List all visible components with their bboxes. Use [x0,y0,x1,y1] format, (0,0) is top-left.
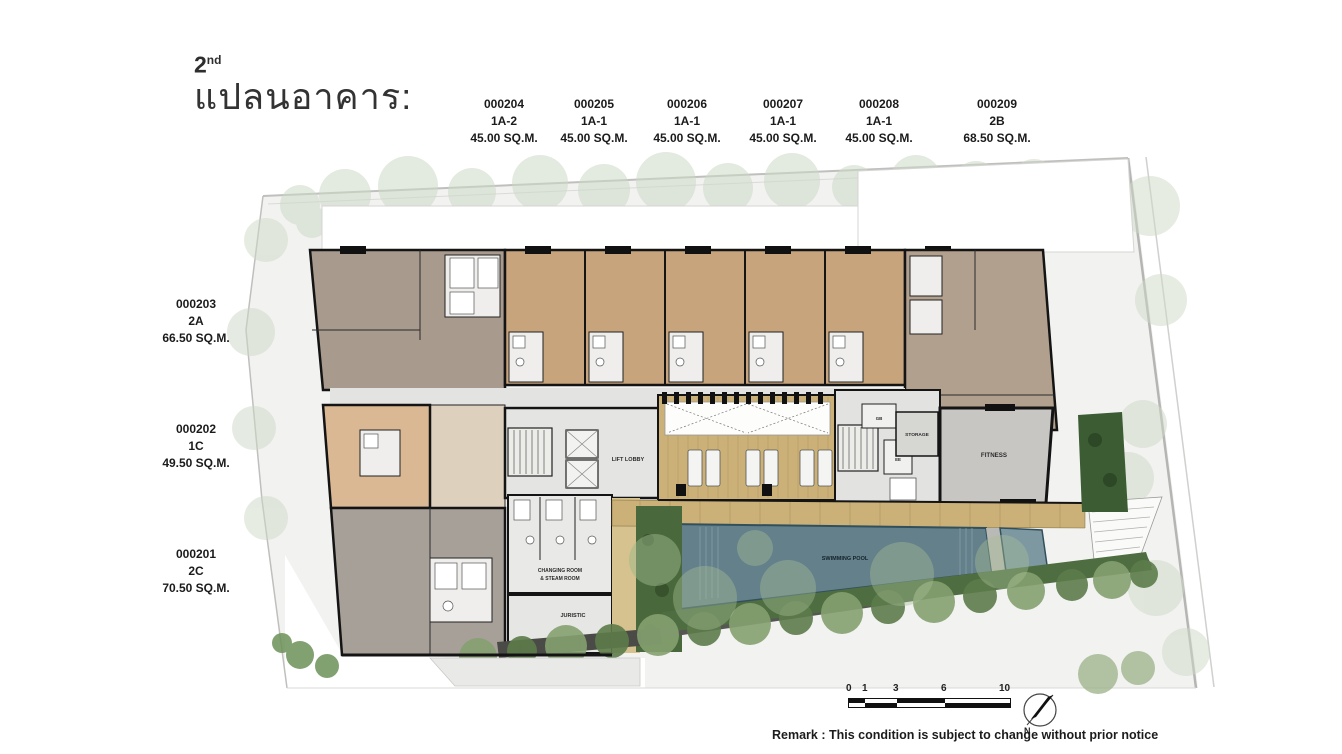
unit-area: 45.00 SQ.M. [642,130,732,147]
unit-type: 2C [136,563,256,580]
amenity-deck [658,392,835,500]
compass-needle [1031,695,1053,719]
fitness-label: FITNESS [981,452,1007,459]
unit-area: 45.00 SQ.M. [738,130,828,147]
thai-title: แปลนอาคาร: [194,77,412,117]
service-cells [430,405,505,508]
unit-type: 1A-1 [549,113,639,130]
unit-type: 1A-1 [642,113,732,130]
scale-tick: 3 [893,683,899,694]
unit-type: 2A [136,313,256,330]
remark-text: Remark : This condition is subject to ch… [772,728,1158,742]
units-1a-strip [505,246,951,385]
unit-label-000203: 000203 2A 66.50 SQ.M. [136,296,256,347]
juristic-label: JURISTIC [560,613,585,619]
unit-label-000204: 000204 1A-2 45.00 SQ.M. [459,96,549,147]
unit-area: 66.50 SQ.M. [136,330,256,347]
floor-number: 2nd [194,48,412,77]
scale-tick: 0 [846,683,852,694]
unit-number: 000209 [952,96,1042,113]
vertical-garden-right [1078,412,1128,512]
unit-area: 68.50 SQ.M. [952,130,1042,147]
unit-type: 2B [952,113,1042,130]
unit-area: 45.00 SQ.M. [834,130,924,147]
unit-number: 000204 [459,96,549,113]
lift-lobby-label: LIFT LOBBY [612,457,645,463]
ee-label: EE [895,457,901,462]
stair-core-1 [508,428,552,476]
trellis-canopy [665,402,830,435]
unit-number: 000206 [642,96,732,113]
unit-number: 000202 [136,421,256,438]
unit-type: 1A-1 [738,113,828,130]
changing-room-label-2: & STEAM ROOM [540,576,579,582]
unit-number: 000207 [738,96,828,113]
sun-loungers [688,450,832,486]
swimming-pool-label: SWIMMING POOL [822,556,869,562]
unit-label-000207: 000207 1A-1 45.00 SQ.M. [738,96,828,147]
unit-1c-area [323,405,430,508]
unit-label-000202: 000202 1C 49.50 SQ.M. [136,421,256,472]
changing-room-label-1: CHANGING ROOM [538,568,582,574]
page-title: 2nd แปลนอาคาร: [194,48,412,117]
unit-2a-area [310,246,505,390]
storage-label: STORAGE [905,432,929,438]
scale-bar: 0 1 3 6 10 [848,698,1011,708]
scale-tick: 1 [862,683,868,694]
unit-label-000205: 000205 1A-1 45.00 SQ.M. [549,96,639,147]
unit-label-000208: 000208 1A-1 45.00 SQ.M. [834,96,924,147]
unit-number: 000201 [136,546,256,563]
unit-area: 45.00 SQ.M. [459,130,549,147]
unit-label-000201: 000201 2C 70.50 SQ.M. [136,546,256,597]
lower-terrace [430,658,640,686]
unit-label-000206: 000206 1A-1 45.00 SQ.M. [642,96,732,147]
scale-bar-row-bottom [849,703,1010,707]
unit-type: 1C [136,438,256,455]
unit-type: 1A-2 [459,113,549,130]
unit-number: 000205 [549,96,639,113]
unit-type: 1A-1 [834,113,924,130]
unit-area: 49.50 SQ.M. [136,455,256,472]
scale-tick: 6 [941,683,947,694]
unit-number: 000203 [136,296,256,313]
unit-area: 70.50 SQ.M. [136,580,256,597]
floor-plan-page: LIFT LOBBY GB EE STORAGE FITNESS CHANGIN… [0,0,1342,754]
scale-tick: 10 [999,683,1010,694]
unit-number: 000208 [834,96,924,113]
unit-label-000209: 000209 2B 68.50 SQ.M. [952,96,1042,147]
unit-2c-area [331,508,505,655]
unit-area: 45.00 SQ.M. [549,130,639,147]
gb-label: GB [876,416,883,421]
right-service-core [835,390,940,505]
